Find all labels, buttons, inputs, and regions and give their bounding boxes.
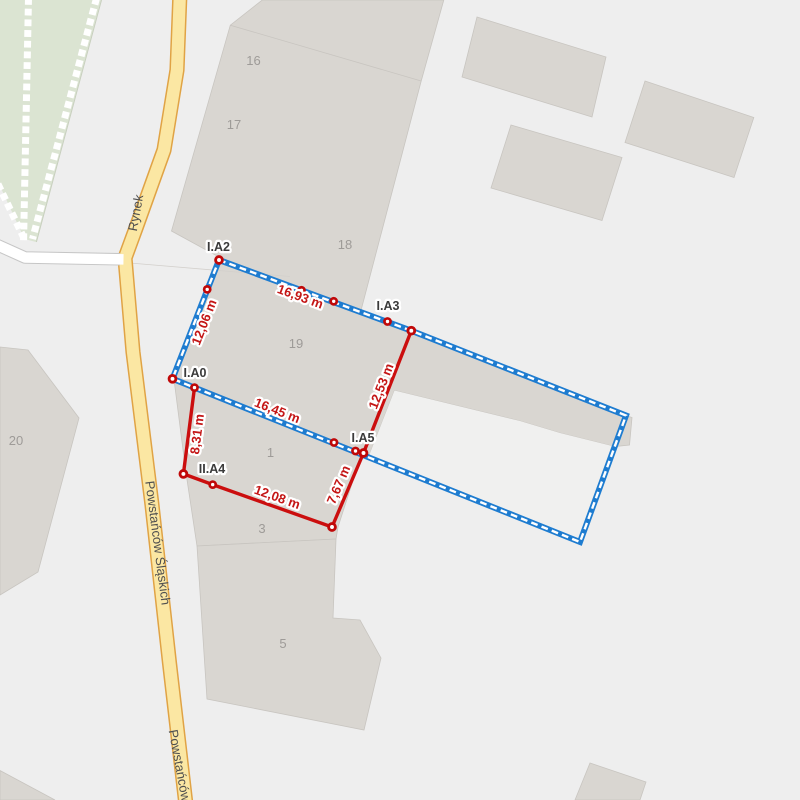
svg-text:16: 16 bbox=[246, 53, 260, 68]
svg-text:3: 3 bbox=[258, 521, 265, 536]
svg-text:17: 17 bbox=[227, 117, 241, 132]
svg-text:I.A0: I.A0 bbox=[184, 366, 207, 380]
svg-text:I.A3: I.A3 bbox=[377, 299, 400, 313]
svg-text:18: 18 bbox=[338, 237, 352, 252]
svg-text:I.A5: I.A5 bbox=[352, 431, 375, 445]
svg-text:II.A4: II.A4 bbox=[199, 462, 225, 476]
svg-text:20: 20 bbox=[9, 433, 23, 448]
svg-text:19: 19 bbox=[289, 336, 303, 351]
svg-text:5: 5 bbox=[279, 636, 286, 651]
svg-text:I.A2: I.A2 bbox=[207, 240, 230, 254]
svg-text:1: 1 bbox=[267, 445, 274, 460]
